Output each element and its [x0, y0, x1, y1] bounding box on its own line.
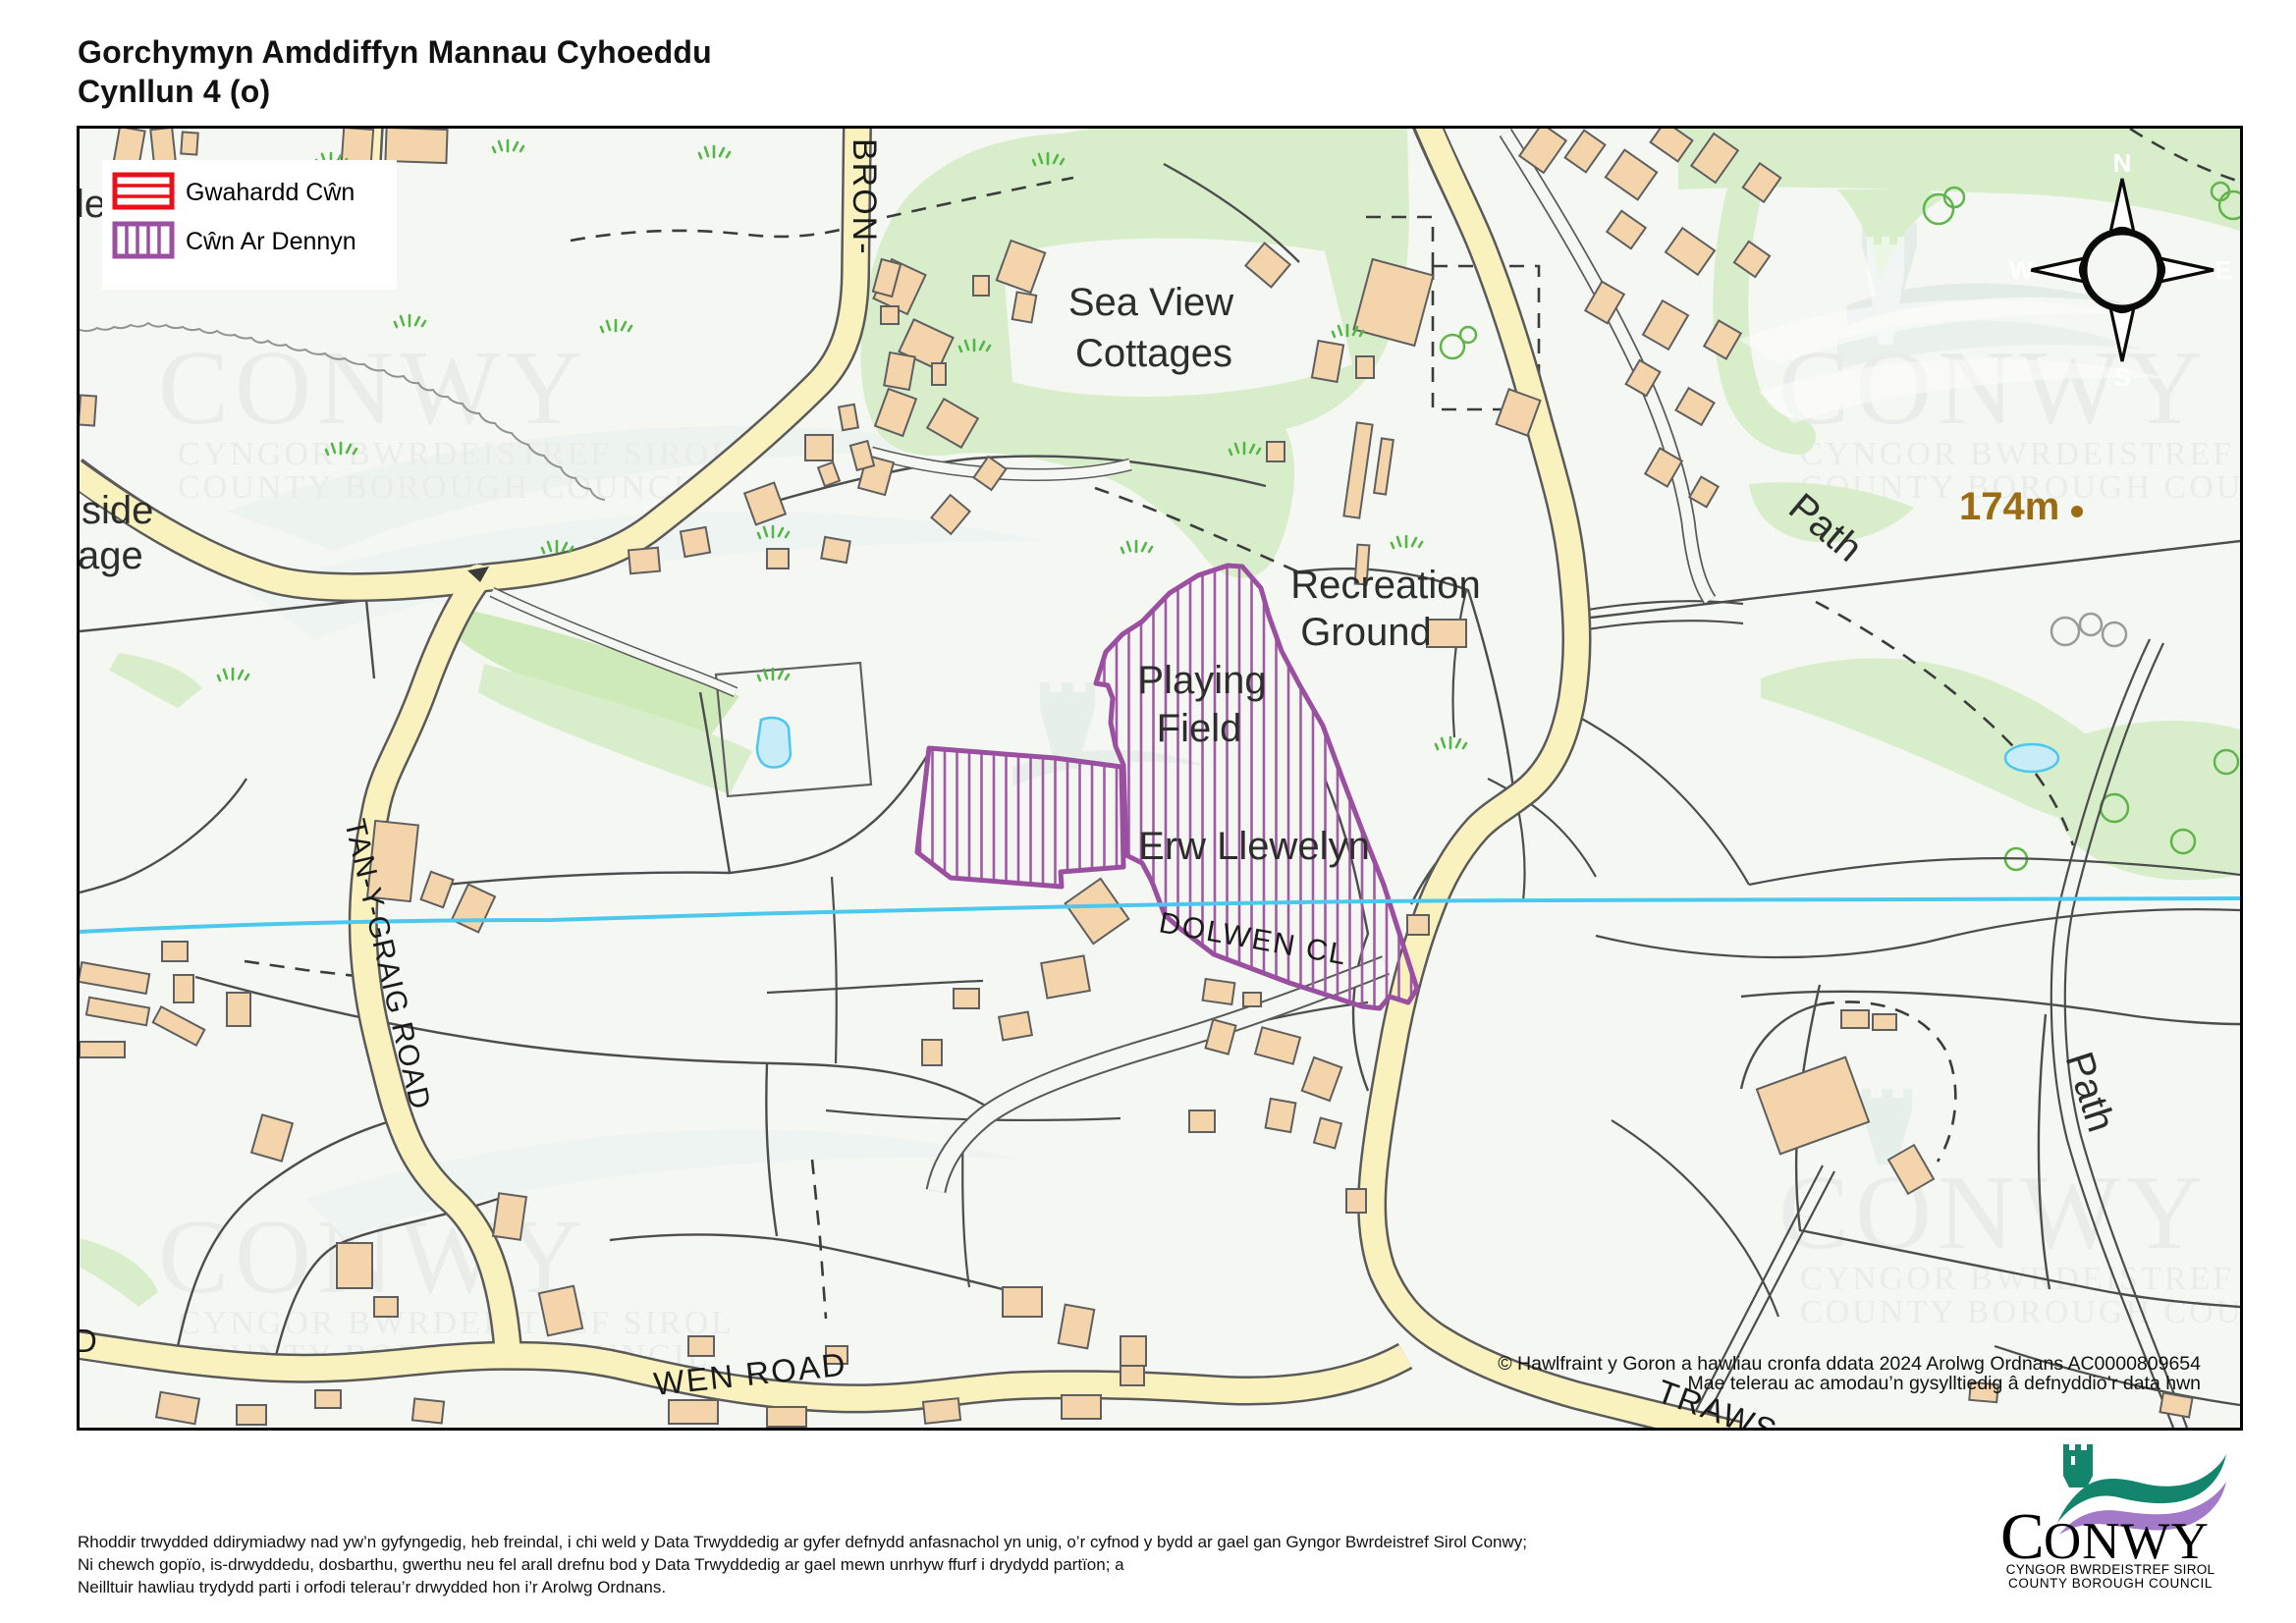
svg-text:Gwahardd Cŵn: Gwahardd Cŵn	[186, 179, 355, 206]
svg-text:Cŵn Ar Dennyn: Cŵn Ar Dennyn	[186, 228, 356, 255]
svg-text:COUNTY BOROUGH COUNCIL: COUNTY BOROUGH COUNCIL	[178, 469, 711, 506]
svg-text:Ground: Ground	[1300, 611, 1431, 654]
svg-text:W: W	[2009, 255, 2034, 285]
svg-text:CONWY: CONWY	[158, 330, 588, 447]
svg-text:CYNGOR BWRDEISTREF SIROL: CYNGOR BWRDEISTREF SIROL	[1800, 1261, 2240, 1297]
svg-text:D: D	[80, 1323, 99, 1359]
svg-text:COUNTY BOROUGH COUNCIL: COUNTY BOROUGH COUNCIL	[1800, 1294, 2240, 1330]
svg-text:CYNGOR BWRDEISTREF SIROL: CYNGOR BWRDEISTREF SIROL	[1800, 436, 2240, 472]
svg-text:CYNGOR BWRDEISTREF SIROL: CYNGOR BWRDEISTREF SIROL	[178, 436, 735, 472]
svg-text:COUNTY BOROUGH COUNCIL: COUNTY BOROUGH COUNCIL	[2008, 1576, 2213, 1589]
svg-text:Mae telerau ac amodau’n gysyll: Mae telerau ac amodau’n gysylltiedig â d…	[1688, 1373, 2201, 1394]
svg-text:Cottages: Cottages	[1075, 332, 1232, 375]
svg-text:Sea View: Sea View	[1068, 281, 1233, 324]
svg-text:BRON-: BRON-	[846, 138, 883, 256]
svg-text:Erw Llewelyn: Erw Llewelyn	[1138, 825, 1370, 868]
svg-text:S: S	[2113, 362, 2130, 392]
svg-text:Playing: Playing	[1137, 659, 1266, 702]
svg-text:CONWY: CONWY	[1778, 1155, 2209, 1271]
svg-text:Field: Field	[1157, 707, 1242, 750]
svg-text:N: N	[2113, 148, 2132, 178]
svg-text:CYNGOR BWRDEISTREF SIROL: CYNGOR BWRDEISTREF SIROL	[2006, 1562, 2215, 1577]
svg-text:side: side	[82, 489, 153, 532]
svg-text:CYNGOR BWRDEISTREF SIROL: CYNGOR BWRDEISTREF SIROL	[178, 1305, 735, 1341]
svg-text:© Hawlfraint y Goron a hawliau: © Hawlfraint y Goron a hawliau cronfa dd…	[1498, 1353, 2201, 1375]
svg-text:174m: 174m	[1959, 485, 2059, 528]
svg-text:Recreation: Recreation	[1290, 564, 1480, 607]
svg-text:E: E	[2214, 255, 2231, 285]
svg-text:age: age	[80, 534, 143, 577]
